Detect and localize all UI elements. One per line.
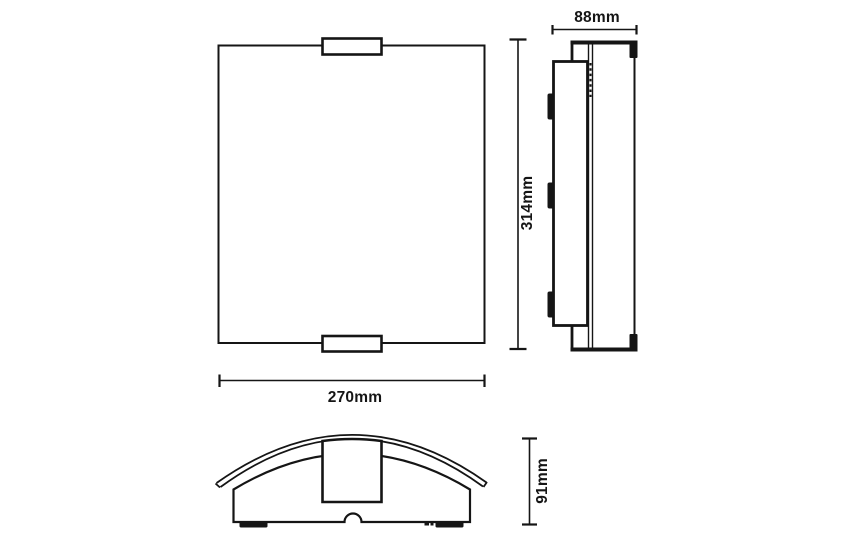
- profile-glass-arc-left-cap: [216, 484, 221, 488]
- drawing-linework: [0, 0, 856, 540]
- front-bottom-clip: [323, 336, 382, 352]
- front-view: [219, 39, 485, 352]
- side-top-hook-lip: [630, 41, 638, 59]
- front-glass-panel-outline: [219, 46, 485, 344]
- width-dimension-label: 270mm: [328, 389, 382, 407]
- side-bottom-hook-lip: [630, 334, 638, 352]
- side-mount-clip-bottom: [548, 292, 555, 318]
- side-housing-outline: [554, 62, 588, 326]
- side-view: [548, 41, 638, 352]
- profile-height-dimension-label: 91mm: [534, 458, 552, 504]
- width-dimension-line: [219, 375, 485, 388]
- profile-screw-mark-b: [431, 523, 434, 526]
- profile-view: [216, 435, 488, 528]
- profile-screw-mark-a: [425, 522, 430, 526]
- profile-glass-arc-right-cap: [484, 482, 488, 487]
- profile-mounting-box: [323, 439, 382, 502]
- height-dimension-label: 314mm: [519, 176, 537, 230]
- technical-drawing-canvas: 270mm 314mm 88mm 91mm: [0, 0, 856, 540]
- side-mount-clip-middle: [548, 183, 555, 209]
- side-mount-clip-top: [548, 94, 555, 120]
- profile-foot-left: [240, 522, 268, 528]
- depth-dimension-label: 88mm: [574, 9, 620, 27]
- front-top-clip: [323, 39, 382, 55]
- profile-foot-right: [436, 522, 464, 528]
